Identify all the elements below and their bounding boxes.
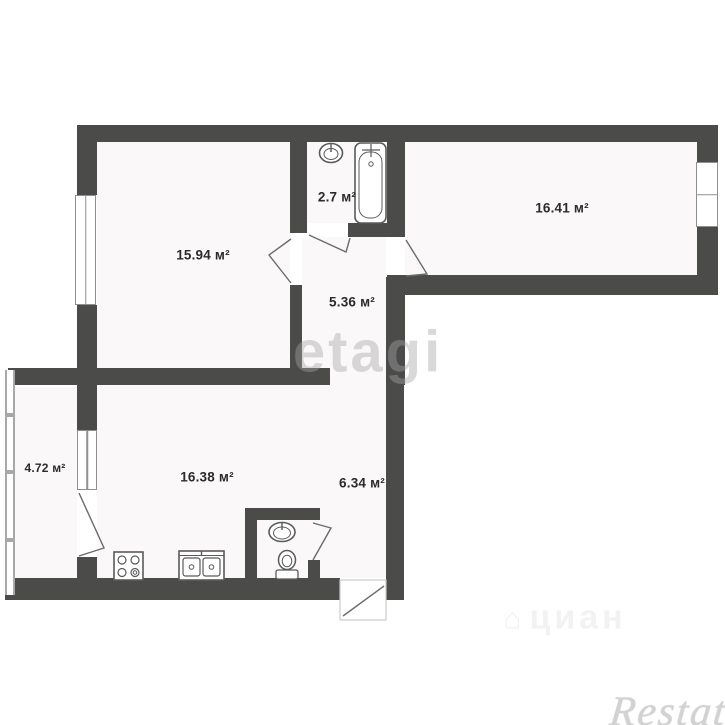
cian-watermark-text: циан (529, 599, 626, 637)
area-label-hallway-lower: 6.34 м² (339, 476, 385, 491)
restate-watermark: Restate (607, 688, 725, 725)
area-label-bathroom: 2.7 м² (318, 190, 356, 205)
toilet-icon (276, 551, 298, 580)
door-bedroom (406, 240, 427, 276)
kitchen-double-sink-icon (179, 551, 224, 580)
area-label-hallway-upper: 5.36 м² (329, 295, 375, 310)
etagi-watermark: etagi (293, 319, 443, 386)
wc-sink-icon (269, 523, 295, 542)
area-label-bedroom: 16.41 м² (535, 201, 589, 216)
cian-watermark: ⌂циан (503, 599, 626, 638)
area-label-balcony: 4.72 м² (25, 461, 66, 475)
door-balcony (79, 493, 104, 556)
bathtub-icon (355, 143, 386, 223)
door-bathroom (309, 235, 350, 252)
door-living (269, 239, 291, 283)
cian-house-icon: ⌂ (503, 603, 525, 636)
bathroom-sink-icon (320, 144, 343, 163)
door-entrance (340, 580, 386, 620)
floor-plan: 15.94 м² 2.7 м² 16.41 м² 5.36 м² 4.72 м²… (0, 0, 725, 725)
area-label-living: 15.94 м² (176, 248, 230, 263)
stove-icon (114, 552, 143, 580)
area-label-kitchen: 16.38 м² (180, 470, 234, 485)
door-wc (313, 523, 331, 560)
